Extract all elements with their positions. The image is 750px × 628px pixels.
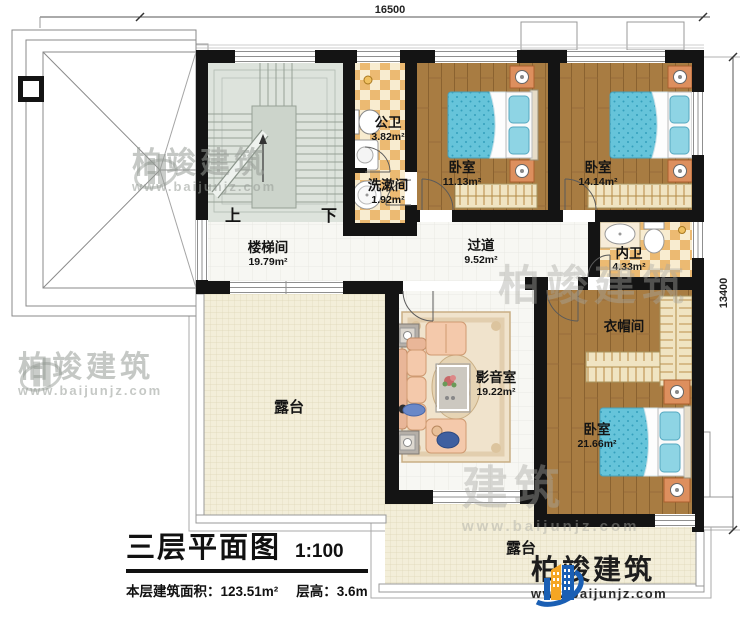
room-label-bedroom3: 卧室 — [584, 421, 612, 437]
pillow — [509, 96, 529, 123]
room-label-bedroom1: 卧室 — [449, 159, 476, 175]
room-label-stairwell: 楼梯间 — [248, 239, 289, 255]
room-label-media-room: 影音室 — [476, 369, 517, 385]
pillow — [509, 127, 529, 154]
stair-landing — [252, 106, 296, 208]
toilet-icon — [644, 222, 664, 229]
room-area-bedroom1: 11.13m² — [443, 176, 482, 188]
room-area-public-bath: 3.82m² — [371, 131, 405, 143]
room-label-ensuite: 内卫 — [616, 245, 644, 261]
room-area-media-room: 19.22m² — [476, 386, 516, 398]
room-area-washroom: 1.92m² — [371, 194, 405, 206]
window — [692, 222, 704, 258]
sliding-door — [230, 281, 343, 294]
window — [433, 490, 520, 504]
room-area-stairwell: 19.79m² — [248, 256, 288, 268]
room-area-ensuite: 4.33m² — [612, 261, 646, 273]
floor-plan-drawing: 16500 13400 楼梯间 19.79m² 上 下 公卫 3.82m² 洗漱… — [0, 0, 750, 628]
window — [567, 50, 665, 63]
window — [235, 50, 315, 63]
roof-plan — [12, 30, 196, 316]
stairs-down-label: 下 — [321, 208, 337, 225]
window — [435, 50, 517, 63]
pillow — [670, 127, 689, 154]
pillow — [660, 444, 680, 472]
window — [357, 50, 400, 63]
room-area-bedroom2: 14.14m² — [578, 176, 618, 188]
window — [692, 92, 704, 155]
pillow — [670, 96, 689, 123]
room-label-cloakroom: 衣帽间 — [604, 318, 645, 334]
room-label-public-bath: 公卫 — [375, 115, 402, 130]
floor-plan-canvas: 16500 13400 楼梯间 19.79m² 上 下 公卫 3.82m² 洗漱… — [0, 0, 750, 628]
shower-drain-icon — [679, 227, 686, 234]
shower-drain-icon — [364, 76, 372, 84]
stairs-up-label: 上 — [225, 207, 241, 225]
room-label-terrace-left: 露台 — [274, 398, 304, 416]
room-label-bedroom2: 卧室 — [585, 159, 613, 175]
room-label-washroom: 洗漱间 — [368, 177, 409, 193]
pillow — [660, 412, 680, 440]
room-label-corridor: 过道 — [468, 237, 495, 253]
dimension-width-label: 16500 — [375, 4, 406, 16]
room-area-bedroom3: 21.66m² — [577, 438, 617, 450]
window — [196, 220, 208, 280]
window — [655, 514, 695, 527]
bed-headboard — [684, 406, 691, 478]
room-area-corridor: 9.52m² — [464, 254, 498, 266]
dimension-height-label: 13400 — [718, 278, 730, 309]
room-label-terrace-bottom: 露台 — [506, 539, 536, 557]
